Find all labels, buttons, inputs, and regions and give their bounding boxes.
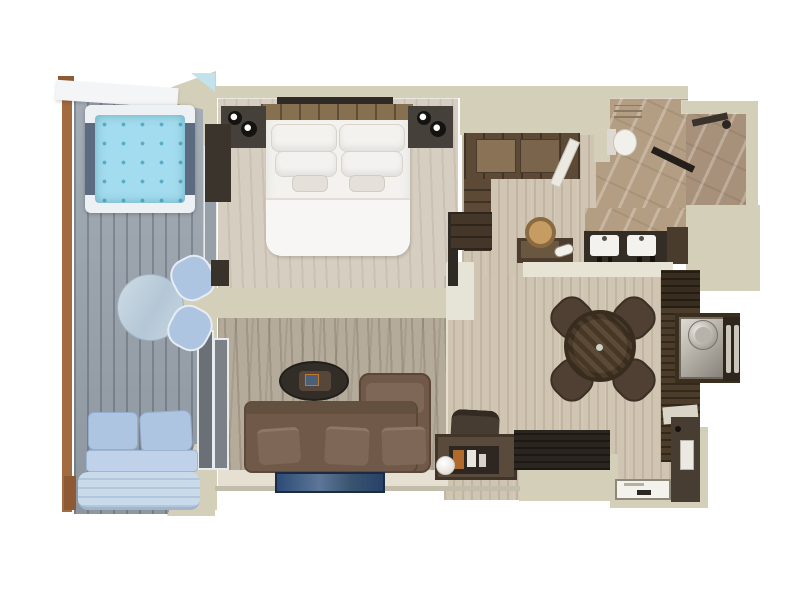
bedside-lamp-left-1 xyxy=(228,111,242,125)
sofa-cushion-3 xyxy=(381,426,426,466)
bed-duvet xyxy=(266,198,410,256)
blue-area-rug xyxy=(275,472,385,493)
sphere-lamp xyxy=(436,456,455,475)
balcony-rail-post-bottom xyxy=(64,476,76,510)
console-bottle-2 xyxy=(467,450,476,467)
plunge-pool-side-left xyxy=(85,123,95,195)
wall-right xyxy=(746,111,758,213)
bar-counter-top xyxy=(661,270,700,308)
closet-shelf-unit xyxy=(451,212,492,250)
wardrobe-compartment-1 xyxy=(476,139,516,173)
wall-closet-niche xyxy=(460,98,598,135)
bedside-lamp-right-2 xyxy=(430,121,446,137)
bar-slat-slot-1 xyxy=(726,325,731,373)
towel-shelf xyxy=(614,105,642,118)
bed-pillow-2 xyxy=(339,124,405,152)
floor-plan xyxy=(0,0,800,600)
bed-pillow-3 xyxy=(275,151,337,177)
luggage-cabinet xyxy=(514,430,610,470)
ice-bucket-inner xyxy=(695,327,711,343)
faucet-2 xyxy=(639,236,644,241)
console-bottle-3 xyxy=(479,454,486,467)
dining-top-wall-band xyxy=(523,262,673,277)
bed-accent-pillow-2 xyxy=(349,175,385,192)
sofa-cushion-1 xyxy=(257,427,301,466)
balcony-sofa-cushion-1 xyxy=(88,412,138,450)
shower-head xyxy=(722,120,731,129)
vanity-stool xyxy=(525,217,556,248)
balcony-lounger xyxy=(78,472,200,510)
sofa-back-edge xyxy=(246,401,416,414)
bedside-lamp-right-1 xyxy=(417,111,431,125)
wall-entry-right-strip xyxy=(699,427,708,502)
bed-accent-pillow-1 xyxy=(292,175,328,192)
plunge-pool-side-right xyxy=(185,123,195,195)
coffee-table-decor xyxy=(305,374,319,386)
entrance-door-panel xyxy=(680,440,694,470)
bedroom-bench xyxy=(211,260,229,286)
living-balcony-glass-door-2 xyxy=(213,338,229,470)
bed-pillow-4 xyxy=(341,151,403,177)
bed-pillow-1 xyxy=(271,124,337,152)
entry-wall-fixture xyxy=(675,426,681,432)
living-balcony-glass-door xyxy=(197,330,214,470)
wardrobe-compartment-2 xyxy=(520,139,560,173)
bathroom-side-cabinet xyxy=(667,227,688,264)
bedroom-cabinet xyxy=(205,124,231,202)
door-mat-logo xyxy=(637,490,651,495)
plunge-pool-water xyxy=(95,115,185,203)
toilet-bowl xyxy=(613,129,637,156)
balcony-sofa-cushion-2 xyxy=(139,410,193,454)
door-mat-text-mark xyxy=(624,483,644,486)
sofa-cushion-2 xyxy=(324,426,370,466)
faucet-1 xyxy=(602,236,607,241)
bedside-lamp-left-2 xyxy=(241,121,257,137)
balcony-sofa-seat xyxy=(86,450,198,472)
wall-bedroom-living-divider xyxy=(211,288,473,318)
dining-table-centerpiece xyxy=(596,344,603,351)
balcony-rail xyxy=(62,86,72,512)
bar-slat-slot-2 xyxy=(734,325,739,373)
